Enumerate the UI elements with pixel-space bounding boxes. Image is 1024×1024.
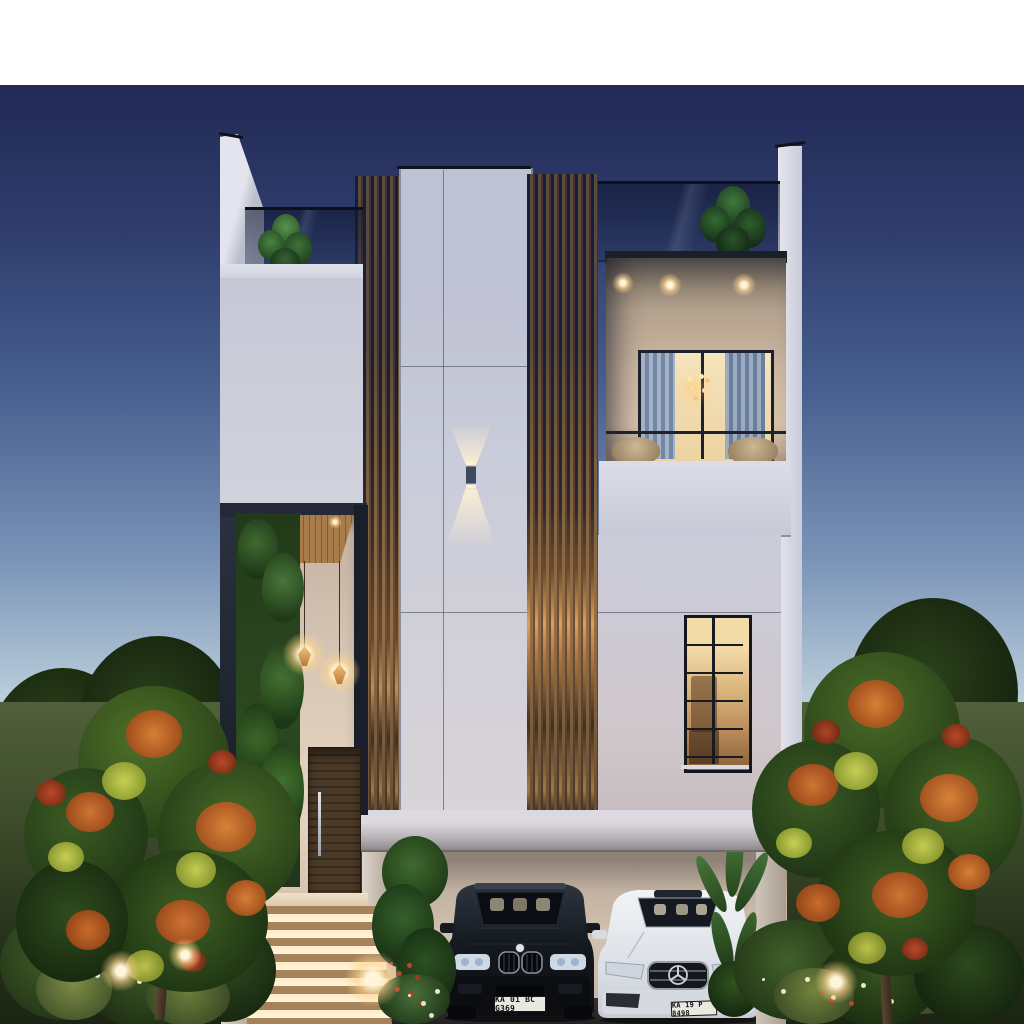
suv-plate-text: KA 01 BC G369 [495,995,545,1013]
garden-light [344,950,402,1008]
foliage-blob [208,750,236,774]
sedan-sunroof [654,890,702,898]
foliage-blob [66,910,110,950]
garden-bollard-light [814,960,858,1004]
suv-headlight-right [550,954,586,970]
foliage-blob [776,828,812,858]
panel-seam-vertical [443,170,444,814]
ornamental-tree-left [8,652,320,1024]
foliage-blob [226,880,266,916]
foliage-blob [36,780,66,806]
foliage-blob [102,762,146,800]
balcony-downlight [658,273,682,297]
villa-dusk-render: KA 01 BC G369 KA 19 P 8498 [0,0,1024,1024]
garden-light [100,950,142,992]
balcony-downlight [612,272,634,294]
foliage-blob [66,792,114,832]
porch-downlight [328,515,342,529]
foliage-blob [942,724,970,748]
foliage-blob [176,852,216,888]
foliage-blob [126,710,182,758]
slat-shading [527,174,598,816]
facade-joint-line [597,612,781,613]
lit-window [684,615,752,773]
panel-seam-horizontal [401,612,527,613]
foliage-blob [196,802,256,852]
garden-light [168,938,202,972]
foliage-blob [788,764,838,806]
foliage-blob [812,720,840,744]
wicker-chair [728,437,778,464]
balcony-parapet [599,461,791,537]
foliage-blob [902,828,944,864]
foliage-blob [796,884,840,922]
white-flower-cluster [408,994,411,997]
center-roof-coping [397,166,531,169]
foliage-blob [848,932,886,964]
balcony-downlight [732,273,756,297]
suv-headlight-left [454,954,490,970]
foliage-blob [902,938,928,960]
panel-seam-horizontal [401,366,527,367]
left-tower-wall [220,278,363,508]
ornamental-tree-right [752,632,1024,1024]
foliage-blob [920,774,978,822]
suv-emblem [516,944,525,953]
balcony-handrail [606,431,786,434]
wall-sconce [466,462,476,488]
foliage-blob [848,680,904,728]
foliage-blob [834,752,878,790]
foliage-blob [48,842,84,872]
window-grid [687,618,743,764]
foliage-blob [872,872,928,918]
wicker-chair [612,437,660,464]
suv-license-plate: KA 01 BC G369 [494,996,546,1012]
door-mullion [701,353,704,459]
window-sill [681,765,749,769]
foliage-blob [948,854,990,890]
chandelier [691,387,694,390]
